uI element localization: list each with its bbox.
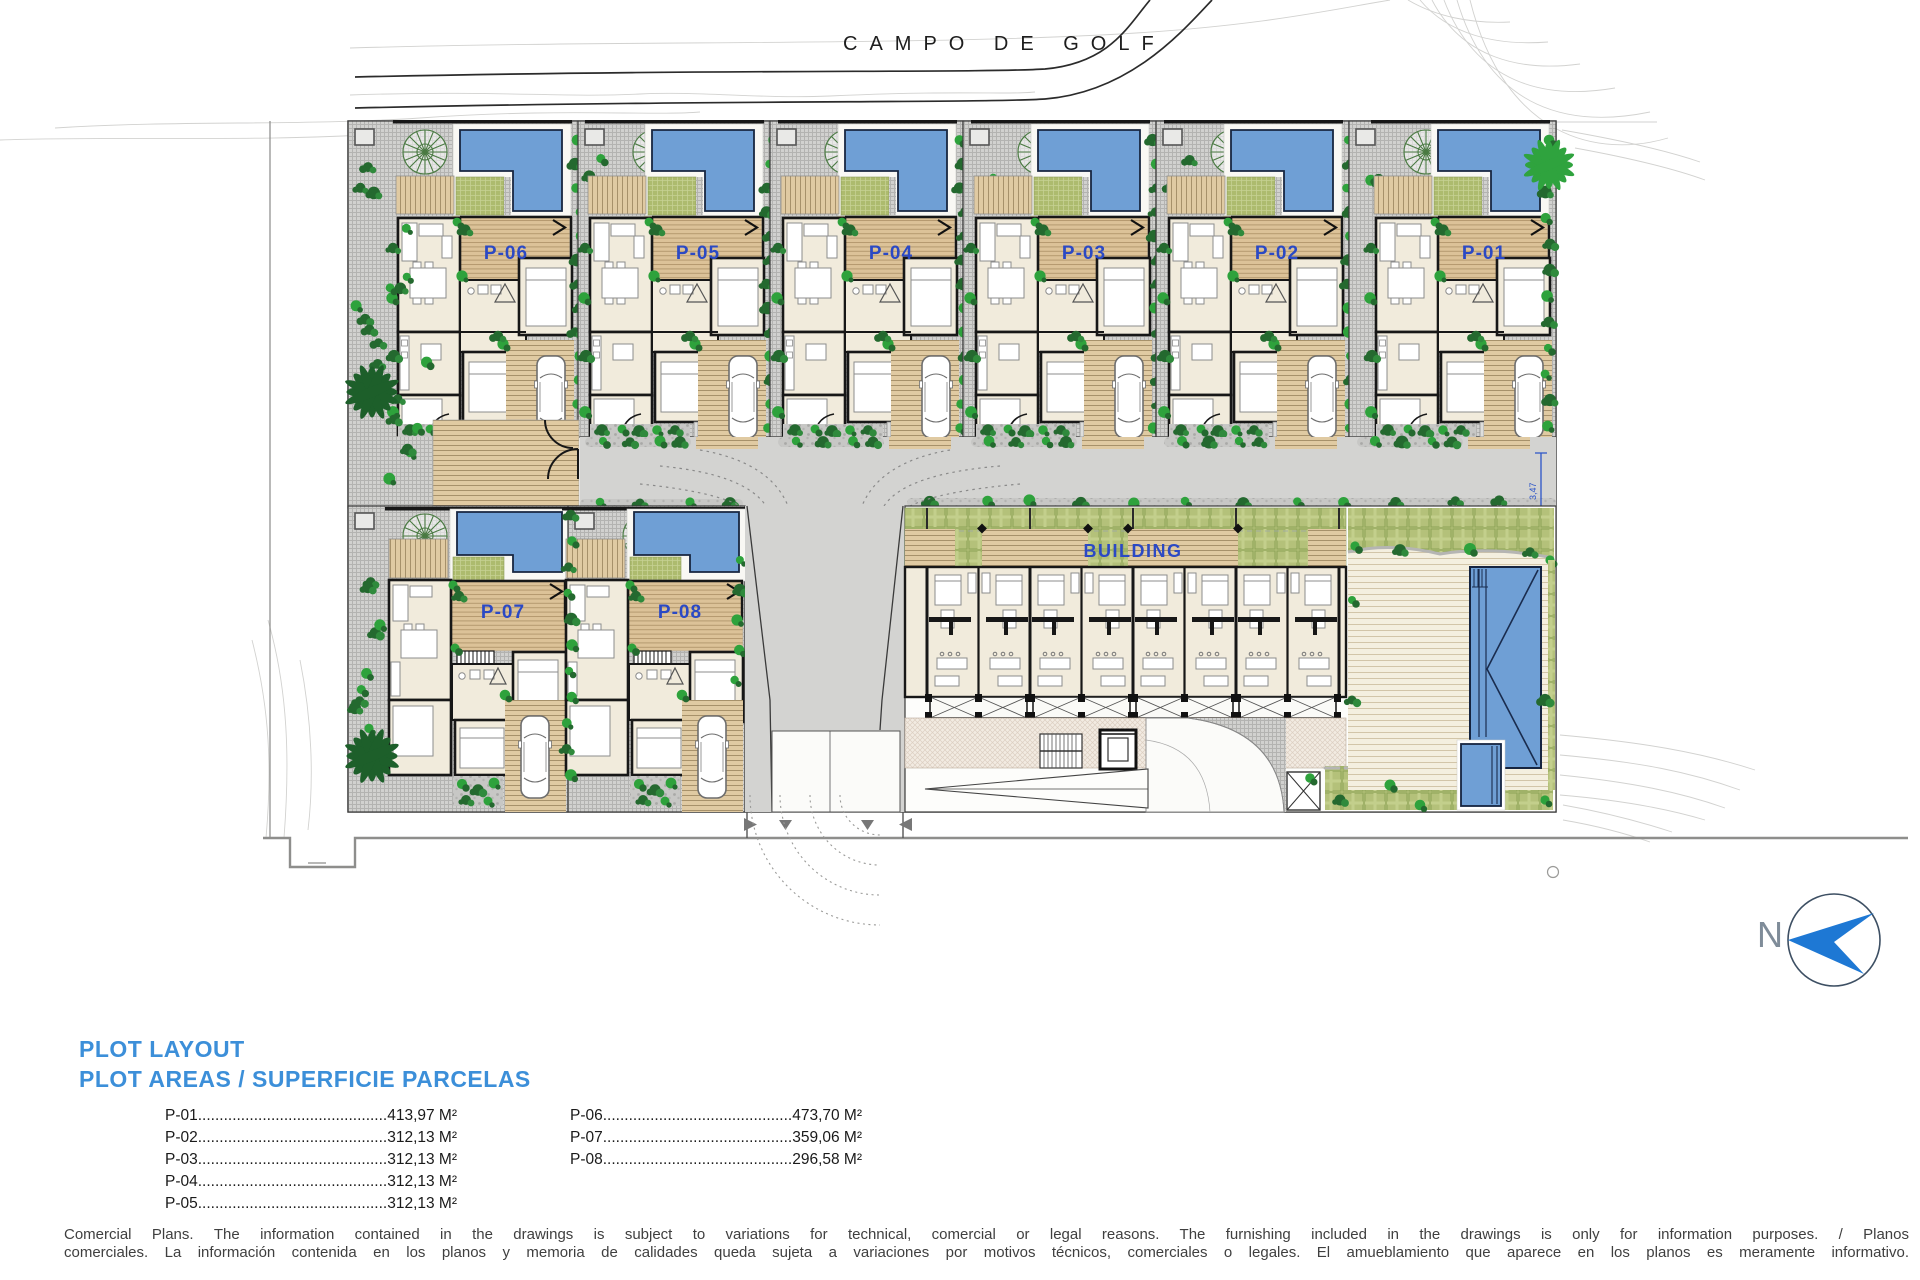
svg-text:P-06: P-06 (484, 243, 528, 264)
svg-text:3,47: 3,47 (1528, 482, 1538, 500)
svg-text:CAMPO DE GOLF: CAMPO DE GOLF (843, 33, 1166, 55)
svg-text:P-08: P-08 (658, 602, 702, 623)
svg-text:P-04: P-04 (869, 243, 913, 264)
svg-text:N: N (1757, 914, 1783, 955)
svg-text:P-05: P-05 (676, 243, 720, 264)
svg-text:P-03: P-03 (1062, 243, 1106, 264)
svg-text:P-01: P-01 (1462, 243, 1506, 264)
svg-text:BUILDING: BUILDING (1084, 541, 1183, 561)
svg-text:P-02: P-02 (1255, 243, 1299, 264)
svg-text:P-07: P-07 (481, 602, 525, 623)
